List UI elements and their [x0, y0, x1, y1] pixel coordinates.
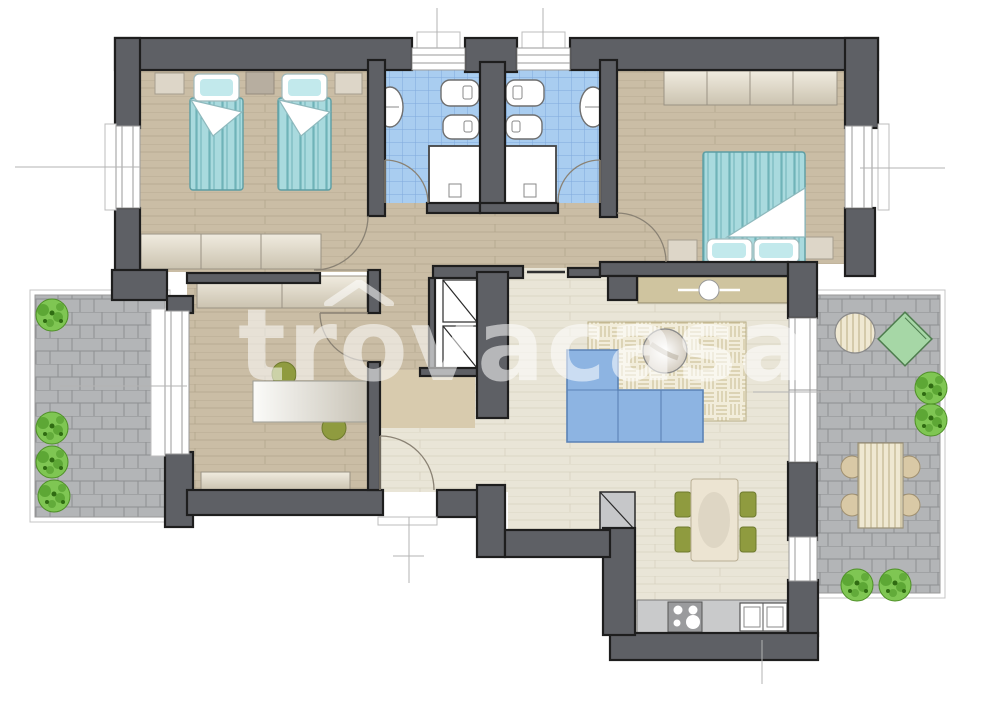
coffee-table	[643, 329, 687, 373]
window-bath-1	[412, 48, 465, 70]
round-table	[835, 313, 875, 353]
shaft-pillar	[600, 492, 635, 530]
outdoor-table	[858, 443, 903, 528]
twin-bed	[278, 74, 331, 190]
nightstand	[246, 72, 274, 94]
window-study	[165, 311, 189, 454]
bush	[36, 412, 68, 444]
bush	[36, 446, 68, 478]
stove	[668, 602, 702, 632]
bidet	[443, 115, 479, 139]
toilet	[441, 80, 479, 106]
nightstand	[335, 73, 362, 94]
bush	[38, 480, 70, 512]
window-kitchen	[789, 537, 817, 581]
double-bed	[703, 152, 805, 264]
bush	[915, 404, 947, 436]
window-double-bedroom	[845, 126, 872, 208]
entry-mat	[378, 370, 475, 428]
kitchen-sink	[740, 603, 787, 631]
dining-chair	[740, 492, 756, 517]
nightstand	[668, 240, 697, 262]
bush	[915, 372, 947, 404]
desk	[253, 381, 367, 422]
toilet	[506, 80, 544, 106]
entrance-threshold	[378, 490, 437, 525]
nightstand	[155, 73, 184, 94]
shower	[429, 146, 480, 204]
floor-plan: trovacasa	[0, 0, 996, 710]
dining-chair	[675, 527, 691, 552]
bush	[879, 569, 911, 601]
sideboard	[638, 277, 788, 303]
floor-plan-drawing	[0, 0, 996, 710]
wardrobe	[664, 71, 837, 105]
hall-closet	[435, 278, 477, 368]
bidet	[506, 115, 542, 139]
bush	[841, 569, 873, 601]
window-living-terrace	[789, 318, 817, 462]
dining-chair	[675, 492, 691, 517]
dining-chair	[740, 527, 756, 552]
bush	[36, 299, 68, 331]
cabinet	[201, 472, 350, 490]
terrace-left	[30, 290, 170, 522]
window-bath-2	[517, 48, 570, 70]
twin-bed	[190, 74, 243, 190]
nightstand	[804, 237, 833, 259]
shower	[505, 146, 556, 204]
dresser	[141, 234, 321, 269]
terrace-right	[812, 290, 947, 601]
